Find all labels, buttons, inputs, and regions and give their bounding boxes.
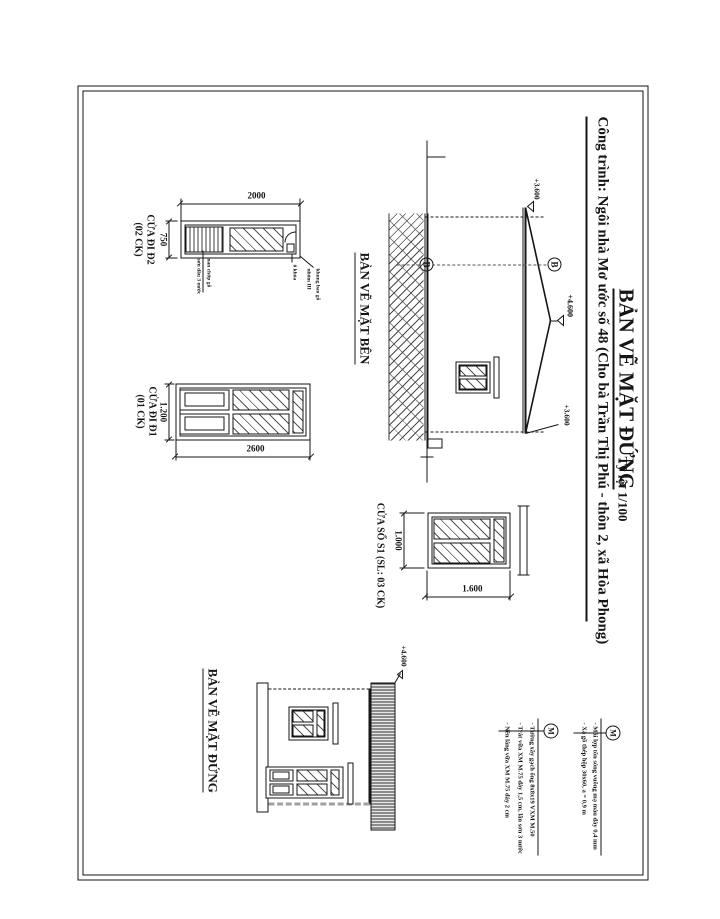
side-gable-window-pane <box>459 378 486 389</box>
side-wall-edge-left <box>425 216 543 217</box>
d1-leaf-panel-right-inner <box>184 416 224 430</box>
side-tick-right <box>420 456 433 457</box>
side-gable-window-pane <box>459 365 486 376</box>
keynote-rule-roof <box>600 718 601 855</box>
project-line: Công trình: Ngôi nhà Mơ ước số 48 (Cho b… <box>593 116 609 644</box>
front-window-transom <box>316 710 324 736</box>
s1-width-dim: 1.000 <box>393 512 402 568</box>
front-window-pane <box>292 710 313 722</box>
d2-louver-vent <box>185 226 223 252</box>
d2-frame-note: nhóm III <box>305 268 311 289</box>
d1-height-dim-line <box>175 456 310 457</box>
d1-transom-glass <box>292 390 303 433</box>
s1-ext-line <box>399 512 424 513</box>
roof-note-line: - Xà gồ thép hộp 30x60, a = 0,9 m <box>580 722 587 814</box>
d2-lock-note: ổ khóa <box>291 264 297 280</box>
axis-letter-top: B <box>549 261 559 267</box>
d2-lock-leader <box>291 253 292 262</box>
d1-count: (01 CK) <box>134 365 145 457</box>
d2-width-dim: 750 <box>158 220 167 258</box>
side-window-lintel <box>493 356 499 398</box>
d1-ext-line <box>309 437 310 460</box>
keynote-symbol-roof: M <box>608 729 617 737</box>
front-window-pane <box>292 724 313 736</box>
s1-lintel-profile <box>519 505 527 575</box>
d2-louver-note: nan chớp gỗ <box>205 258 211 287</box>
front-wall-edge-left <box>268 688 369 689</box>
front-wall-edge-right <box>268 802 369 805</box>
side-ground-line <box>427 213 429 440</box>
side-elevation-caption: BẢN VẼ MẶT BÊN <box>354 252 371 364</box>
front-door-panel-inner <box>272 785 289 793</box>
side-ridge-level: +4.600 <box>565 294 573 317</box>
front-roof-leader <box>393 672 401 684</box>
front-roof-band <box>370 682 395 830</box>
front-door-glass <box>296 783 327 795</box>
side-eave-left-level: +3.600 <box>532 178 540 199</box>
front-door-lintel <box>347 762 353 804</box>
s1-label: CỬA SỔ S1 (SL: 03 CK) <box>374 492 385 618</box>
d1-label: CỬA ĐI Đ1 <box>146 365 157 457</box>
axis-bubble-top: B <box>547 257 561 271</box>
s1-ext-line <box>399 567 424 568</box>
side-eave-right-leader <box>522 418 562 438</box>
front-door-glass <box>296 769 327 781</box>
keynote-rule-wall <box>537 718 538 855</box>
wall-note-line: - Tường xây gạch ống 8x8x19 VXM M.50 <box>528 722 535 836</box>
d2-height-dim: 2000 <box>247 191 265 200</box>
d1-leaf-glass-left <box>232 389 289 410</box>
wall-note-line: - Trát vữa XM M.75 dày 1,5 cm, lăn sơn 3… <box>516 722 523 853</box>
project-underline <box>586 116 588 621</box>
level-mark-icon <box>526 200 534 212</box>
d1-leaf-panel-left-inner <box>184 392 224 406</box>
side-eave-right-level: +3.600 <box>562 404 570 425</box>
d2-ext-line <box>180 198 181 222</box>
front-window-lintel <box>332 702 338 744</box>
side-ground-line-2 <box>424 213 425 440</box>
side-ground-hatch <box>388 213 423 440</box>
drawing-page: BẢN VẼ MẶT ĐỨNG Tỷ lệ: 1/100 Công trình:… <box>0 0 720 919</box>
keynote-symbol-wall: M <box>546 727 555 735</box>
d1-height-dim: 2600 <box>246 444 264 453</box>
d2-lock-detail <box>286 243 294 252</box>
side-ridge-level-stem <box>549 320 557 321</box>
front-wall-top <box>369 688 371 804</box>
s1-casement-right <box>433 542 490 563</box>
keynote-circle-roof: M <box>605 725 620 740</box>
d2-glass-pane <box>229 227 283 251</box>
d2-label: CỬA ĐI Đ2 <box>144 193 155 285</box>
keynote-circle-wall: M <box>543 723 558 738</box>
side-post-left <box>427 156 445 157</box>
drawing-sheet: BẢN VẼ MẶT ĐỨNG Tỷ lệ: 1/100 Công trình:… <box>0 0 720 919</box>
d2-frame-note: khung bao gỗ <box>314 268 320 300</box>
front-door-panel-inner <box>272 771 289 779</box>
d2-ext-line <box>299 198 300 222</box>
side-ground-ext-left <box>426 140 427 213</box>
d2-height-dim-line <box>180 203 300 204</box>
side-eaves-line <box>525 207 527 433</box>
d1-leaf-glass-right <box>232 413 289 434</box>
s1-lintel-cap <box>517 505 529 506</box>
side-eaves-line-2 <box>522 207 523 433</box>
d2-louver-leader <box>202 250 203 292</box>
d2-louver-note: sơn dầu 3 nước <box>195 258 201 294</box>
s1-height-dim: 1.600 <box>462 584 482 593</box>
s1-ext-line <box>509 570 510 600</box>
s1-ext-line <box>426 570 427 600</box>
sheet-scale: Tỷ lệ: 1/100 <box>615 456 629 521</box>
d1-width-dim: 1.200 <box>158 383 167 440</box>
d1-ext-line <box>175 437 176 460</box>
s1-lintel-cap <box>517 574 529 575</box>
d2-count: (02 CK) <box>132 193 143 285</box>
front-elevation-caption: BẢN VẼ MẶT ĐỨNG <box>202 668 219 792</box>
side-step <box>427 438 442 448</box>
wall-note-line: - Nền láng vữa XM M.75 dày 2 cm <box>503 722 510 817</box>
front-door-transom <box>330 769 339 795</box>
s1-casement-left <box>433 518 490 539</box>
roof-note-line: - Mái lợp tôn sóng vuông mạ màu dày 0,4 … <box>591 722 598 849</box>
s1-transom-glass <box>493 518 504 562</box>
s1-height-dim-line <box>425 596 510 597</box>
front-roof-level: +4.600 <box>399 645 407 666</box>
